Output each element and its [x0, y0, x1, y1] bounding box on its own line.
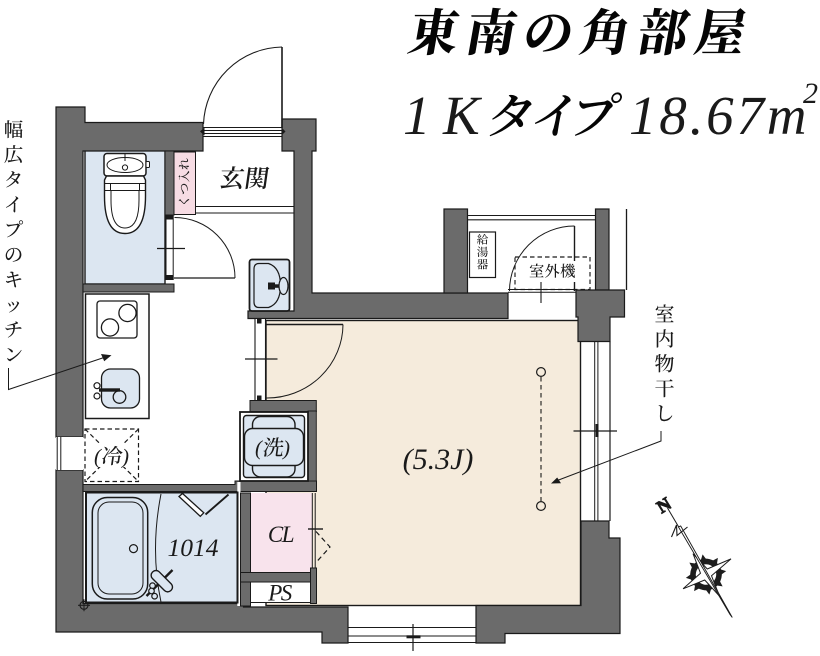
svg-text:CL: CL — [268, 522, 294, 547]
svg-text:PS: PS — [267, 580, 293, 605]
svg-text:(5.3J): (5.3J) — [403, 443, 474, 476]
svg-text:( ): ( ) — [255, 436, 290, 460]
svg-text:1: 1 — [403, 85, 431, 146]
svg-text:18.67m: 18.67m — [629, 85, 809, 146]
svg-text:K: K — [442, 85, 483, 146]
svg-text:1014: 1014 — [168, 533, 219, 562]
svg-text:2: 2 — [803, 77, 818, 110]
